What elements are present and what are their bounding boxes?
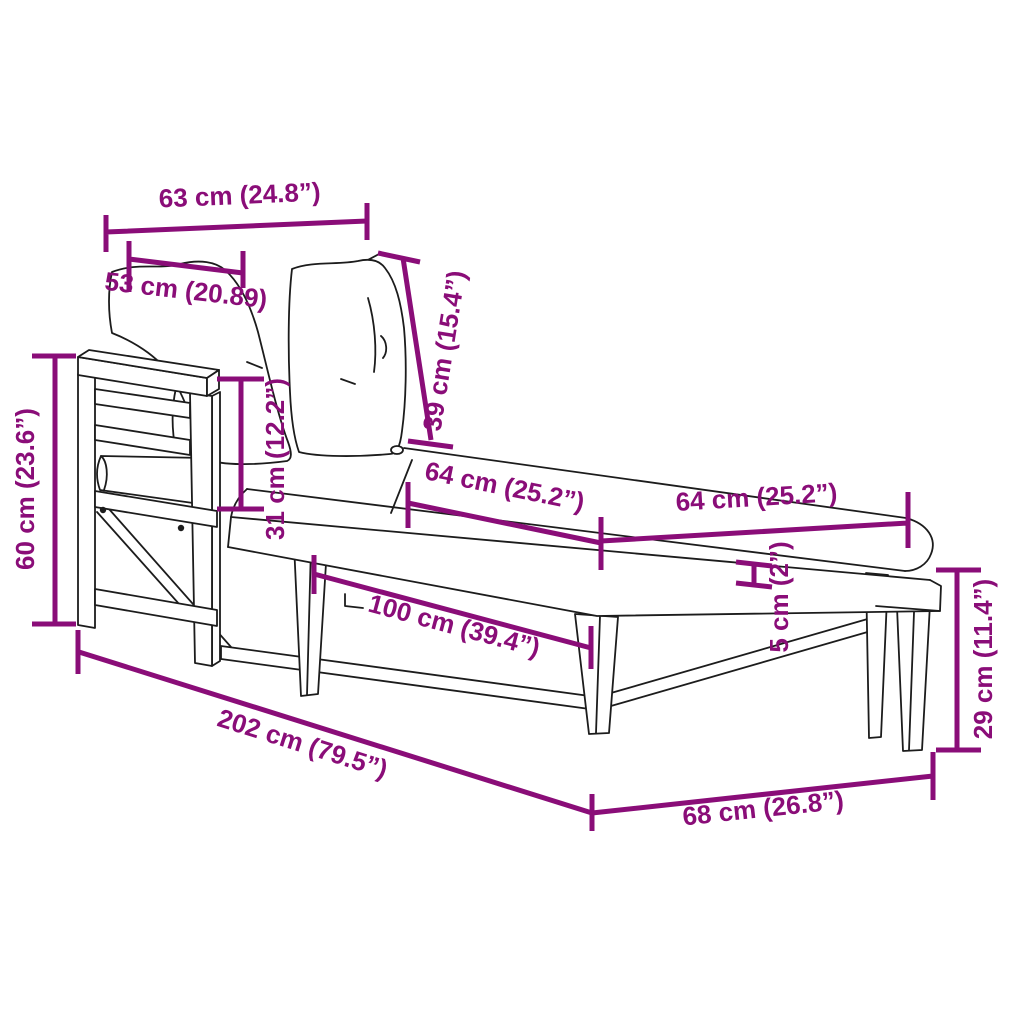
- dim-label-backrest-to-seat: 31 cm (12.2”): [260, 378, 290, 540]
- dim-label-cushion-thickness: 5 cm (2”): [764, 541, 794, 652]
- dim-label-leg-height: 29 cm (11.4”): [968, 579, 998, 739]
- pillow-corner-nub: [391, 446, 403, 454]
- dimension-diagram: 63 cm (24.8”) 53 cm (20.89) 39 cm (15.4”…: [0, 0, 1024, 1024]
- screw-dot: [178, 525, 184, 531]
- screw-dot: [100, 507, 106, 513]
- dim-label-side-frame-height: 60 cm (23.6”): [10, 408, 40, 570]
- pillow-right: [289, 260, 406, 456]
- frame-front-post: [78, 374, 95, 628]
